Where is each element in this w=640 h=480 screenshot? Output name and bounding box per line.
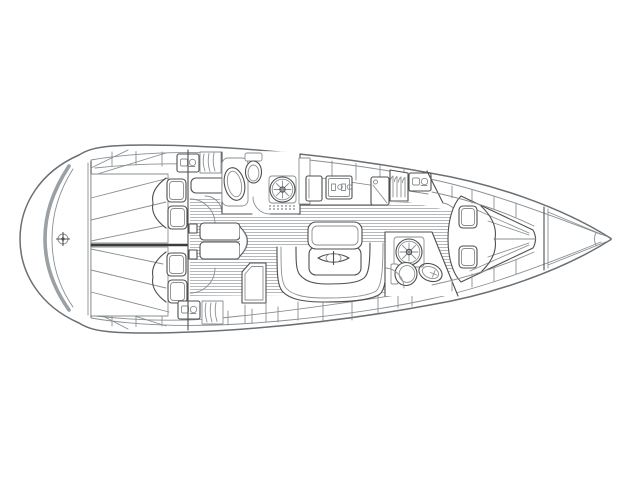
sink-cabinet [371,177,389,205]
louvered-locker [202,301,223,324]
floorplan-canvas: Hull outline Stern with transom and swim… [0,0,640,480]
toilet [391,263,417,286]
vent-hatch-fan-icon [269,176,296,203]
settee-centre-cushion [309,247,361,275]
fridge [306,176,322,201]
boat-floorplan: Hull outline Stern with transom and swim… [0,0,640,480]
aft-head: Aft head with WC, washbasin and vent hat… [221,150,310,214]
chart-table [242,263,266,303]
step [200,242,240,259]
instrument-box-icon [409,173,431,191]
toilet [245,153,262,183]
vanity-unit-icon [178,301,200,319]
louvered-locker [200,152,221,173]
step [200,223,240,240]
step-box [189,224,197,233]
step-box [189,250,197,259]
stove-burners [326,176,352,199]
hanging-locker [390,170,408,201]
